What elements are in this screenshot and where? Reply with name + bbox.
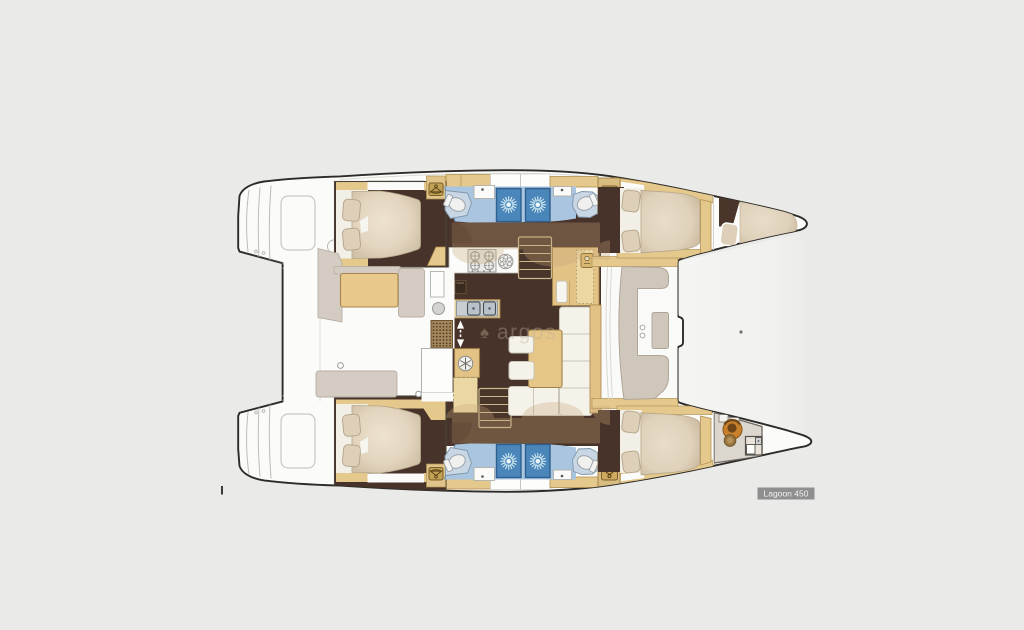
- svg-text:♠: ♠: [480, 323, 489, 342]
- svg-text:argos: argos: [497, 321, 557, 344]
- svg-text:Lagoon 450: Lagoon 450: [764, 489, 809, 499]
